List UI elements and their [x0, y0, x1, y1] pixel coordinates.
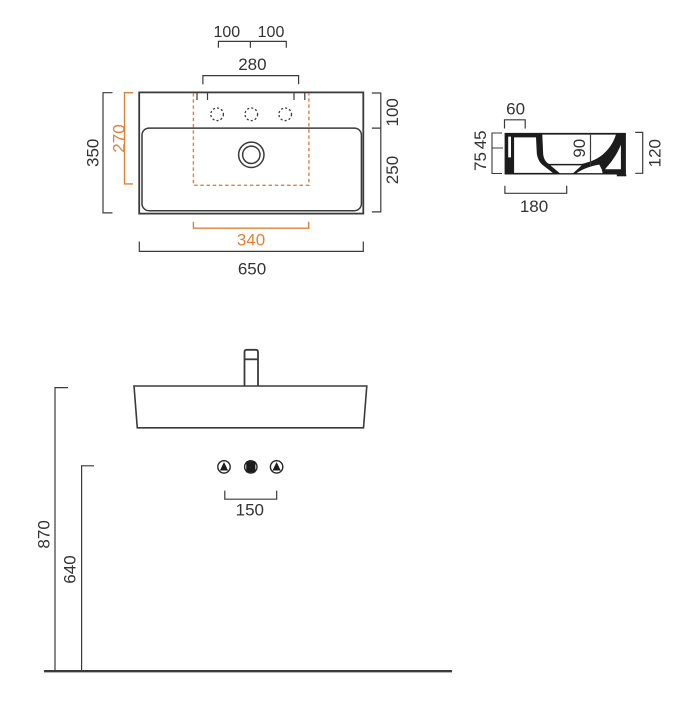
svg-text:340: 340 — [237, 230, 265, 249]
svg-text:120: 120 — [646, 139, 665, 167]
svg-text:180: 180 — [520, 197, 548, 216]
svg-text:100: 100 — [213, 24, 240, 41]
svg-text:650: 650 — [238, 260, 266, 279]
svg-text:150: 150 — [236, 501, 264, 520]
svg-text:75: 75 — [471, 152, 490, 171]
svg-text:350: 350 — [84, 139, 103, 167]
svg-text:250: 250 — [383, 156, 402, 184]
svg-text:870: 870 — [34, 520, 53, 548]
svg-text:640: 640 — [61, 555, 80, 583]
svg-text:270: 270 — [109, 124, 128, 152]
svg-text:280: 280 — [238, 55, 266, 74]
svg-text:100: 100 — [383, 98, 402, 126]
svg-text:60: 60 — [506, 100, 525, 119]
svg-text:100: 100 — [258, 24, 285, 41]
svg-text:90: 90 — [570, 139, 589, 158]
svg-text:45: 45 — [471, 130, 490, 149]
